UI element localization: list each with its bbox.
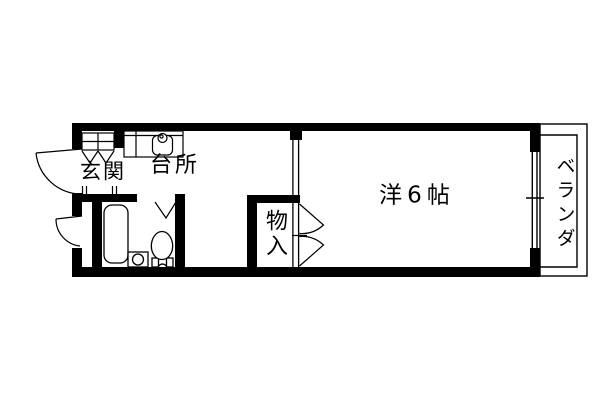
toilet-leg-left: [152, 258, 159, 267]
wall-stub-counter: [114, 131, 124, 148]
wall-bathroom-top: [72, 194, 137, 202]
wall-bathroom-right: [175, 194, 185, 267]
wall-right-lower: [530, 248, 540, 277]
wall-closet-left: [247, 195, 257, 267]
closet-label: 物入: [263, 209, 285, 259]
toilet-bowl: [151, 232, 172, 260]
wall-left-upper: [72, 123, 82, 149]
kitchen-faucet-dot: [160, 135, 163, 138]
wall-top: [72, 123, 540, 131]
wall-stub-doorway: [290, 131, 302, 140]
wall-left-lower: [72, 248, 82, 277]
kitchen-label: 台所: [150, 155, 200, 177]
wall-bathroom-inner-left: [92, 202, 102, 267]
western-room-label: 洋6帖: [379, 185, 455, 208]
bathtub: [104, 205, 128, 263]
floor-plan-drawing: [0, 0, 600, 400]
floor-plan: 玄関 台所 物入 洋6帖 ベランダ: [0, 0, 600, 400]
wall-right-upper: [530, 123, 540, 152]
wash-basin-bowl: [133, 254, 144, 265]
wall-bottom: [72, 267, 540, 277]
toilet-leg-right: [167, 258, 174, 267]
veranda-label: ベランダ: [555, 156, 574, 252]
wall-closet-top: [247, 195, 300, 203]
genkan-label: 玄関: [80, 162, 126, 183]
